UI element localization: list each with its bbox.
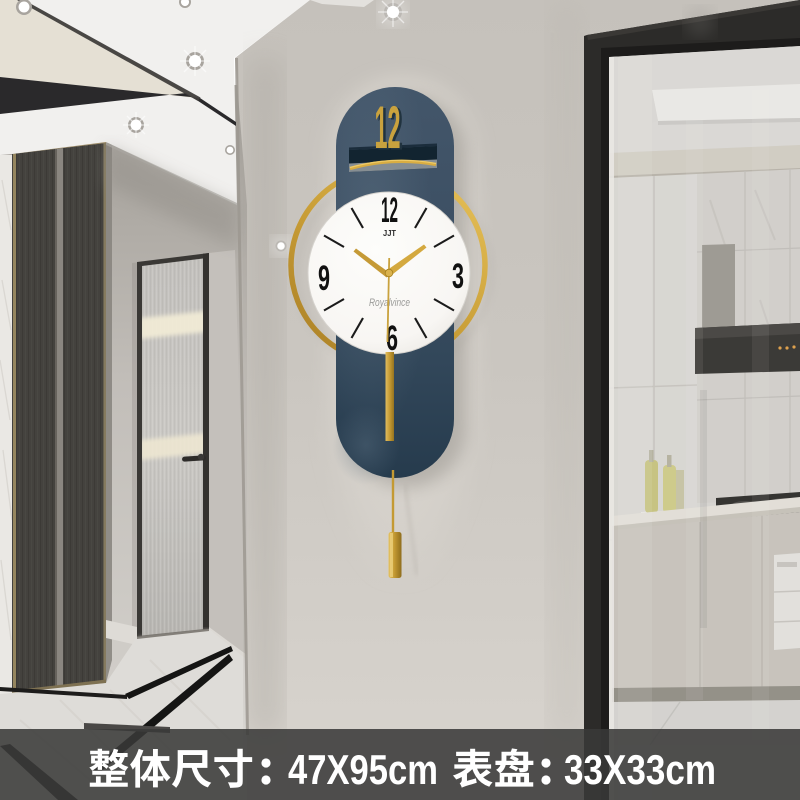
- svg-text:3: 3: [452, 257, 464, 296]
- svg-text:9: 9: [318, 259, 330, 298]
- svg-text:12: 12: [375, 94, 401, 161]
- svg-text:47X95cm: 47X95cm: [288, 746, 438, 793]
- svg-text:JJT: JJT: [383, 229, 396, 238]
- svg-text:Royalvince: Royalvince: [369, 297, 410, 309]
- svg-text:12: 12: [381, 191, 398, 230]
- svg-text:33X33cm: 33X33cm: [564, 746, 716, 793]
